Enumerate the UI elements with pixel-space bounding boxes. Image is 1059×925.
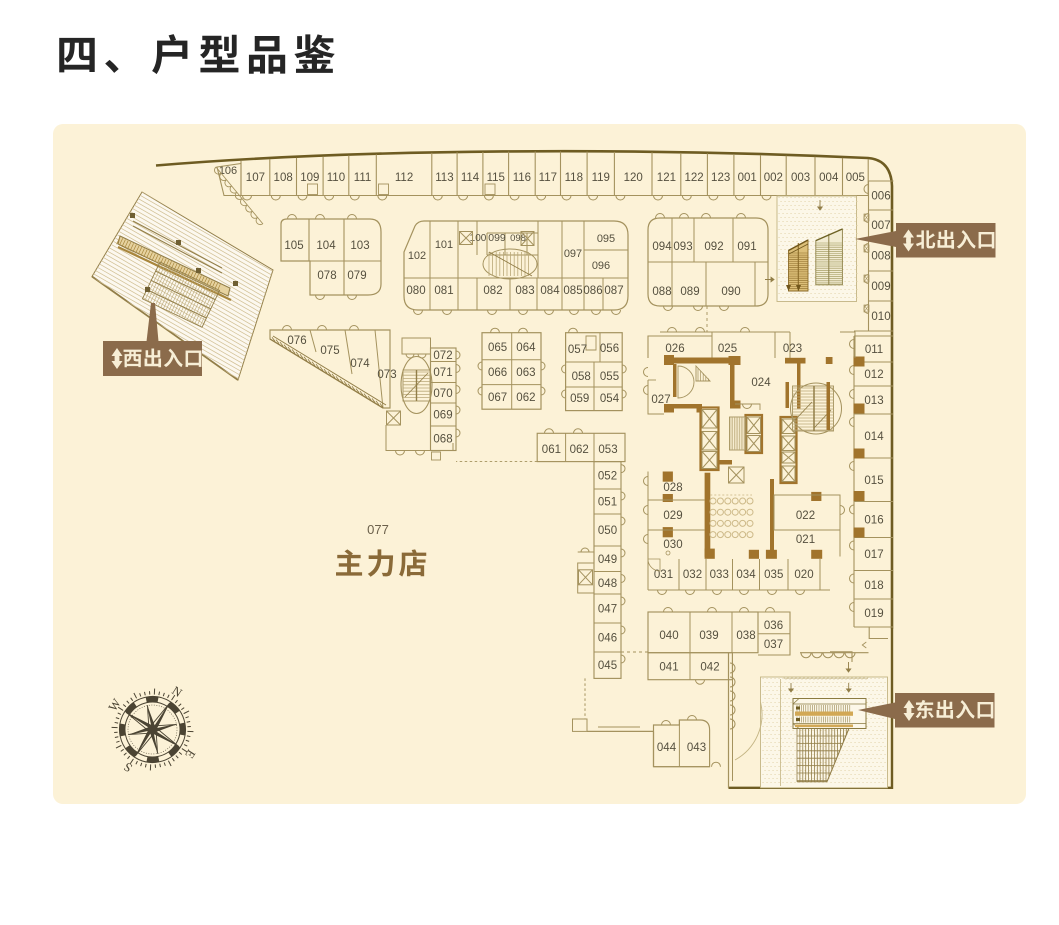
svg-text:086: 086 [583, 285, 602, 297]
svg-text:067: 067 [488, 392, 507, 404]
svg-text:113: 113 [435, 172, 453, 184]
svg-text:047: 047 [598, 604, 617, 616]
svg-text:070: 070 [433, 388, 452, 400]
svg-text:006: 006 [871, 191, 890, 203]
svg-text:096: 096 [592, 260, 610, 272]
svg-text:018: 018 [864, 580, 883, 592]
svg-text:103: 103 [350, 240, 369, 252]
svg-text:030: 030 [663, 539, 682, 551]
svg-text:015: 015 [864, 475, 883, 487]
svg-text:087: 087 [604, 285, 623, 297]
svg-text:048: 048 [598, 578, 617, 590]
svg-text:042: 042 [700, 662, 719, 674]
svg-text:079: 079 [347, 270, 366, 282]
svg-text:065: 065 [488, 342, 507, 354]
svg-text:078: 078 [317, 270, 336, 282]
svg-text:084: 084 [540, 285, 560, 297]
svg-text:005: 005 [846, 172, 865, 184]
svg-text:026: 026 [665, 343, 684, 355]
svg-text:052: 052 [598, 470, 617, 482]
svg-text:097: 097 [564, 248, 582, 260]
svg-text:094: 094 [652, 241, 672, 253]
svg-text:059: 059 [570, 393, 589, 405]
svg-text:020: 020 [794, 569, 813, 581]
svg-text:050: 050 [598, 525, 617, 537]
svg-text:115: 115 [487, 172, 505, 184]
svg-text:022: 022 [796, 510, 815, 522]
svg-text:089: 089 [680, 286, 699, 298]
svg-text:011: 011 [865, 344, 883, 356]
svg-text:101: 101 [435, 239, 453, 251]
svg-text:057: 057 [568, 344, 587, 356]
svg-text:029: 029 [663, 510, 682, 522]
svg-text:013: 013 [864, 395, 883, 407]
svg-text:062: 062 [516, 392, 535, 404]
svg-text:092: 092 [704, 241, 723, 253]
svg-text:112: 112 [395, 172, 413, 184]
svg-text:053: 053 [598, 444, 617, 456]
svg-text:105: 105 [284, 240, 303, 252]
svg-text:062: 062 [570, 444, 589, 456]
svg-text:027: 027 [651, 394, 670, 406]
svg-text:091: 091 [737, 241, 756, 253]
svg-text:102: 102 [408, 250, 426, 262]
svg-text:046: 046 [598, 633, 617, 645]
svg-text:122: 122 [685, 172, 704, 184]
svg-text:032: 032 [683, 569, 702, 581]
svg-text:002: 002 [764, 172, 783, 184]
svg-text:107: 107 [246, 172, 265, 184]
svg-text:061: 061 [542, 444, 561, 456]
svg-text:118: 118 [565, 172, 583, 184]
svg-text:114: 114 [461, 172, 480, 184]
svg-text:058: 058 [572, 371, 591, 383]
svg-text:038: 038 [736, 630, 755, 642]
svg-text:069: 069 [433, 410, 452, 422]
svg-text:008: 008 [871, 251, 890, 263]
svg-text:071: 071 [433, 367, 452, 379]
svg-text:012: 012 [864, 369, 883, 381]
svg-text:049: 049 [598, 554, 617, 566]
svg-text:082: 082 [483, 285, 502, 297]
svg-text:074: 074 [350, 358, 370, 370]
svg-text:121: 121 [657, 172, 676, 184]
svg-text:056: 056 [600, 343, 619, 355]
svg-text:080: 080 [406, 285, 425, 297]
svg-text:037: 037 [764, 639, 783, 651]
svg-text:017: 017 [864, 549, 883, 561]
svg-text:040: 040 [659, 630, 678, 642]
svg-text:004: 004 [819, 172, 839, 184]
svg-text:085: 085 [563, 285, 582, 297]
svg-text:054: 054 [600, 393, 620, 405]
svg-text:072: 072 [433, 350, 452, 362]
svg-text:095: 095 [597, 233, 615, 245]
svg-text:019: 019 [864, 608, 883, 620]
svg-text:028: 028 [663, 482, 682, 494]
svg-text:035: 035 [764, 569, 783, 581]
svg-text:033: 033 [710, 569, 729, 581]
svg-text:075: 075 [320, 345, 339, 357]
svg-text:083: 083 [515, 285, 534, 297]
svg-text:021: 021 [796, 534, 815, 546]
svg-text:106: 106 [219, 165, 237, 177]
svg-text:023: 023 [783, 343, 802, 355]
svg-text:109: 109 [300, 172, 319, 184]
svg-text:001: 001 [738, 172, 757, 184]
svg-text:090: 090 [721, 286, 740, 298]
svg-text:088: 088 [652, 286, 671, 298]
svg-text:036: 036 [764, 620, 783, 632]
svg-text:025: 025 [718, 343, 737, 355]
svg-text:068: 068 [433, 433, 452, 445]
svg-text:108: 108 [274, 172, 293, 184]
svg-text:024: 024 [751, 377, 771, 389]
svg-text:123: 123 [711, 172, 730, 184]
svg-text:014: 014 [864, 431, 884, 443]
svg-text:073: 073 [377, 369, 396, 381]
svg-text:063: 063 [516, 367, 535, 379]
svg-text:039: 039 [699, 630, 718, 642]
svg-text:051: 051 [598, 497, 617, 509]
svg-text:111: 111 [354, 172, 371, 184]
svg-text:055: 055 [600, 371, 619, 383]
svg-text:043: 043 [687, 742, 706, 754]
svg-text:116: 116 [513, 172, 531, 184]
svg-text:034: 034 [736, 569, 756, 581]
svg-text:041: 041 [659, 662, 678, 674]
svg-text:044: 044 [657, 742, 677, 754]
svg-text:081: 081 [434, 285, 453, 297]
svg-text:104: 104 [316, 240, 336, 252]
svg-text:016: 016 [864, 515, 883, 527]
svg-text:045: 045 [598, 660, 617, 672]
svg-text:066: 066 [488, 367, 507, 379]
svg-text:093: 093 [673, 241, 692, 253]
svg-text:077: 077 [367, 522, 389, 537]
svg-text:010: 010 [871, 311, 890, 323]
svg-text:003: 003 [791, 172, 810, 184]
svg-text:099: 099 [488, 232, 506, 244]
svg-text:009: 009 [871, 281, 890, 293]
svg-text:110: 110 [327, 172, 345, 184]
svg-text:120: 120 [624, 172, 643, 184]
svg-text:076: 076 [287, 335, 306, 347]
svg-text:007: 007 [871, 220, 890, 232]
svg-text:064: 064 [516, 342, 536, 354]
svg-text:119: 119 [592, 172, 610, 184]
svg-text:117: 117 [539, 172, 557, 184]
